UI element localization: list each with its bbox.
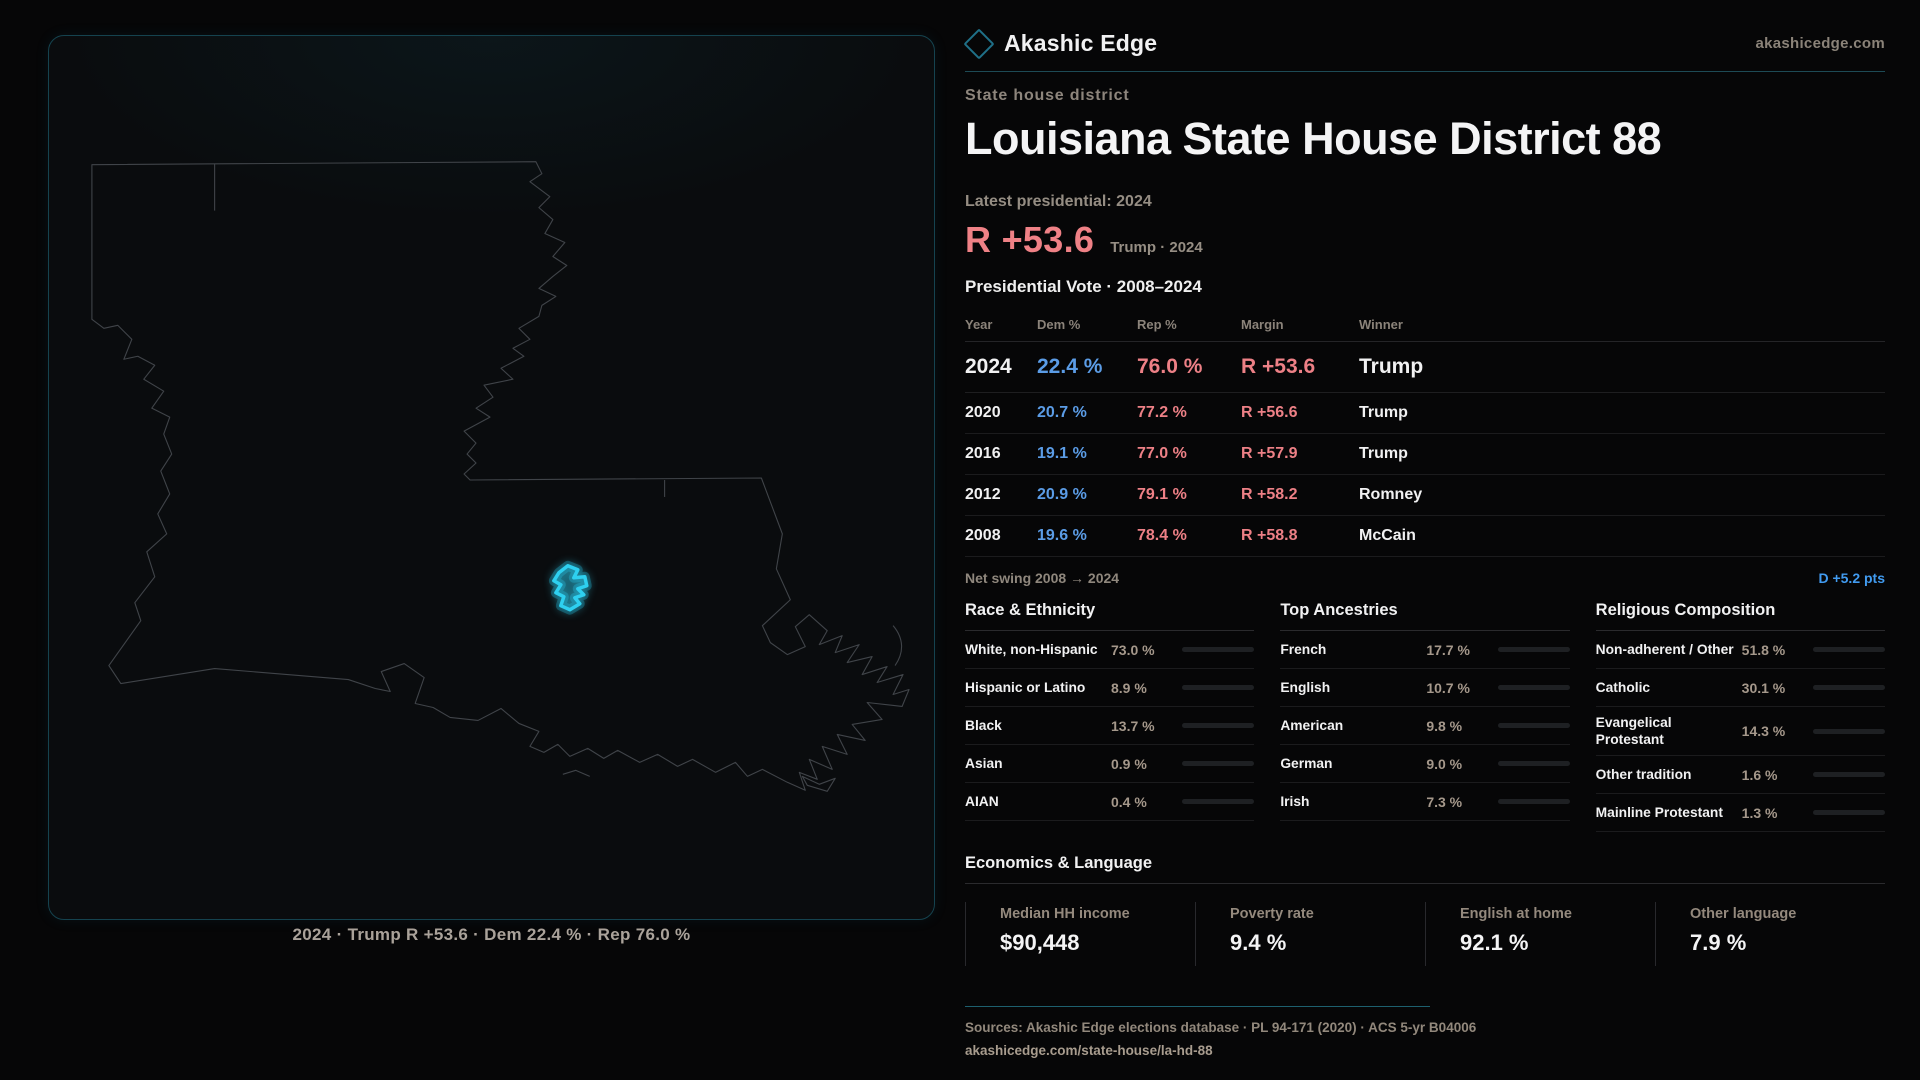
stat-row: White, non-Hispanic 73.0 % <box>965 631 1254 669</box>
cell-rep: 77.2 % <box>1137 404 1241 422</box>
brand-name: Akashic Edge <box>1004 30 1157 57</box>
stat-label: Irish <box>1280 793 1426 810</box>
table-row: 2012 20.9 % 79.1 % R +58.2 Romney <box>965 475 1885 516</box>
stat-row: French 17.7 % <box>1280 631 1569 669</box>
net-swing-label: Net swing 2008 → 2024 <box>965 570 1119 586</box>
economics-grid: Median HH income $90,448 Poverty rate 9.… <box>965 902 1885 966</box>
stat-value: 7.3 % <box>1426 794 1490 810</box>
stat-bar <box>1182 799 1254 804</box>
stat-label: German <box>1280 755 1426 772</box>
stat-bar <box>1182 723 1254 728</box>
table-row: 2008 19.6 % 78.4 % R +58.8 McCain <box>965 516 1885 557</box>
cell-margin: R +58.8 <box>1241 527 1359 545</box>
stat-bar <box>1813 772 1885 777</box>
coast-fragment-3 <box>802 776 835 791</box>
stat-bar <box>1813 810 1885 815</box>
table-row: 2024 22.4 % 76.0 % R +53.6 Trump <box>965 342 1885 393</box>
col-dem: Dem % <box>1037 317 1137 332</box>
cell-dem: 19.6 % <box>1037 527 1137 545</box>
stat-label: Mainline Protestant <box>1596 804 1742 821</box>
stat-card: Poverty rate 9.4 % <box>1195 902 1425 966</box>
stat-row: Catholic 30.1 % <box>1596 669 1885 707</box>
cell-rep: 76.0 % <box>1137 355 1241 379</box>
cell-winner: McCain <box>1359 527 1885 545</box>
stat-value: 0.4 % <box>1111 794 1175 810</box>
district-highlight[interactable] <box>554 566 587 610</box>
stat-row: Evangelical Protestant 14.3 % <box>1596 707 1885 756</box>
louisiana-map <box>49 36 934 919</box>
stat-card: Other language 7.9 % <box>1655 902 1885 966</box>
stat-value: 13.7 % <box>1111 718 1175 734</box>
cell-margin: R +57.9 <box>1241 445 1359 463</box>
cell-winner: Trump <box>1359 355 1885 379</box>
cell-year: 2012 <box>965 486 1037 504</box>
stat-value: 73.0 % <box>1111 642 1175 658</box>
cell-margin: R +58.2 <box>1241 486 1359 504</box>
stat-value: 17.7 % <box>1426 642 1490 658</box>
report-column: Akashic Edge akashicedge.com State house… <box>965 0 1885 1060</box>
stat-value: 9.8 % <box>1426 718 1490 734</box>
stat-bar <box>1182 761 1254 766</box>
cell-year: 2008 <box>965 527 1037 545</box>
map-caption: 2024 · Trump R +53.6 · Dem 22.4 % · Rep … <box>48 925 935 945</box>
stat-label: Other tradition <box>1596 766 1742 783</box>
cell-margin: R +53.6 <box>1241 355 1359 379</box>
demographics-grid: Race & Ethnicity White, non-Hispanic 73.… <box>965 601 1885 832</box>
col-rep: Rep % <box>1137 317 1241 332</box>
section-title: Race & Ethnicity <box>965 601 1254 631</box>
footer-divider <box>965 1006 1430 1007</box>
stat-value: 1.6 % <box>1742 767 1806 783</box>
race-ethnicity-section: Race & Ethnicity White, non-Hispanic 73.… <box>965 601 1254 832</box>
stat-bar <box>1498 647 1570 652</box>
stat-label: Black <box>965 717 1111 734</box>
diamond-logo-icon <box>963 28 994 59</box>
cell-rep: 78.4 % <box>1137 527 1241 545</box>
col-margin: Margin <box>1241 317 1359 332</box>
site-link[interactable]: akashicedge.com <box>1755 35 1885 52</box>
stat-value: 9.0 % <box>1426 756 1490 772</box>
stat-value: 7.9 % <box>1690 930 1885 956</box>
stat-row: Hispanic or Latino 8.9 % <box>965 669 1254 707</box>
cell-winner: Trump <box>1359 445 1885 463</box>
religion-section: Religious Composition Non-adherent / Oth… <box>1596 601 1885 832</box>
stat-bar <box>1182 647 1254 652</box>
stat-card: English at home 92.1 % <box>1425 902 1655 966</box>
stat-label: Non-adherent / Other <box>1596 641 1742 658</box>
stat-value: 0.9 % <box>1111 756 1175 772</box>
stat-row: English 10.7 % <box>1280 669 1569 707</box>
table-title: Presidential Vote · 2008–2024 <box>965 277 1885 297</box>
presidential-vote-table: Year Dem % Rep % Margin Winner 2024 22.4… <box>965 309 1885 557</box>
col-winner: Winner <box>1359 317 1885 332</box>
district-kicker: State house district <box>965 87 1885 105</box>
stat-bar <box>1813 729 1885 734</box>
stat-label: White, non-Hispanic <box>965 641 1111 658</box>
stat-label: Poverty rate <box>1230 906 1425 922</box>
economics-title: Economics & Language <box>965 854 1885 884</box>
cell-year: 2016 <box>965 445 1037 463</box>
stat-row: Mainline Protestant 1.3 % <box>1596 794 1885 832</box>
section-title: Top Ancestries <box>1280 601 1569 631</box>
stat-value: $90,448 <box>1000 930 1195 956</box>
cell-rep: 79.1 % <box>1137 486 1241 504</box>
stat-row: Other tradition 1.6 % <box>1596 756 1885 794</box>
section-title: Religious Composition <box>1596 601 1885 631</box>
stat-label: English at home <box>1460 906 1655 922</box>
cell-winner: Trump <box>1359 404 1885 422</box>
headline-margin: R +53.6 Trump · 2024 <box>965 219 1885 261</box>
net-swing-row: Net swing 2008 → 2024 D +5.2 pts <box>965 570 1885 586</box>
sources-text: Sources: Akashic Edge elections database… <box>965 1020 1885 1035</box>
cell-rep: 77.0 % <box>1137 445 1241 463</box>
permalink[interactable]: akashicedge.com/state-house/la-hd-88 <box>965 1043 1213 1058</box>
stat-value: 9.4 % <box>1230 930 1425 956</box>
coast-fragment-2 <box>563 770 590 776</box>
map-panel <box>48 35 935 920</box>
latest-presidential-label: Latest presidential: 2024 <box>965 193 1885 211</box>
cell-year: 2024 <box>965 355 1037 379</box>
ancestries-section: Top Ancestries French 17.7 % English 10.… <box>1280 601 1569 832</box>
stat-row: American 9.8 % <box>1280 707 1569 745</box>
table-row: 2020 20.7 % 77.2 % R +56.6 Trump <box>965 393 1885 434</box>
stat-row: Asian 0.9 % <box>965 745 1254 783</box>
stat-bar <box>1182 685 1254 690</box>
stat-row: Non-adherent / Other 51.8 % <box>1596 631 1885 669</box>
stat-value: 51.8 % <box>1742 642 1806 658</box>
table-header-row: Year Dem % Rep % Margin Winner <box>965 309 1885 342</box>
cell-dem: 22.4 % <box>1037 355 1137 379</box>
stat-bar <box>1498 761 1570 766</box>
stat-bar <box>1813 647 1885 652</box>
brand-header: Akashic Edge akashicedge.com <box>965 0 1885 72</box>
stat-label: Evangelical Protestant <box>1596 714 1742 748</box>
margin-value: R +53.6 <box>965 219 1094 261</box>
stat-card: Median HH income $90,448 <box>965 902 1195 966</box>
state-outline <box>92 162 909 791</box>
stat-row: Irish 7.3 % <box>1280 783 1569 821</box>
stat-label: English <box>1280 679 1426 696</box>
stat-label: Asian <box>965 755 1111 772</box>
cell-winner: Romney <box>1359 486 1885 504</box>
stat-row: German 9.0 % <box>1280 745 1569 783</box>
coast-fragment-1 <box>893 626 901 666</box>
stat-row: Black 13.7 % <box>965 707 1254 745</box>
stat-bar <box>1498 685 1570 690</box>
stat-label: Catholic <box>1596 679 1742 696</box>
stat-bar <box>1813 685 1885 690</box>
stat-value: 10.7 % <box>1426 680 1490 696</box>
stat-label: French <box>1280 641 1426 658</box>
stat-bar <box>1498 723 1570 728</box>
net-swing-value: D +5.2 pts <box>1818 570 1885 586</box>
cell-dem: 20.7 % <box>1037 404 1137 422</box>
stat-label: Hispanic or Latino <box>965 679 1111 696</box>
stat-row: AIAN 0.4 % <box>965 783 1254 821</box>
margin-context: Trump · 2024 <box>1110 239 1203 256</box>
footer: Sources: Akashic Edge elections database… <box>965 1006 1885 1060</box>
page-title: Louisiana State House District 88 <box>965 113 1885 165</box>
stat-bar <box>1498 799 1570 804</box>
col-year: Year <box>965 317 1037 332</box>
stat-value: 30.1 % <box>1742 680 1806 696</box>
cell-dem: 20.9 % <box>1037 486 1137 504</box>
stat-value: 1.3 % <box>1742 805 1806 821</box>
stat-label: Median HH income <box>1000 906 1195 922</box>
stat-label: American <box>1280 717 1426 734</box>
stat-value: 14.3 % <box>1742 723 1806 739</box>
cell-margin: R +56.6 <box>1241 404 1359 422</box>
stat-label: Other language <box>1690 906 1885 922</box>
stat-value: 92.1 % <box>1460 930 1655 956</box>
cell-year: 2020 <box>965 404 1037 422</box>
stat-value: 8.9 % <box>1111 680 1175 696</box>
stat-label: AIAN <box>965 793 1111 810</box>
cell-dem: 19.1 % <box>1037 445 1137 463</box>
table-row: 2016 19.1 % 77.0 % R +57.9 Trump <box>965 434 1885 475</box>
